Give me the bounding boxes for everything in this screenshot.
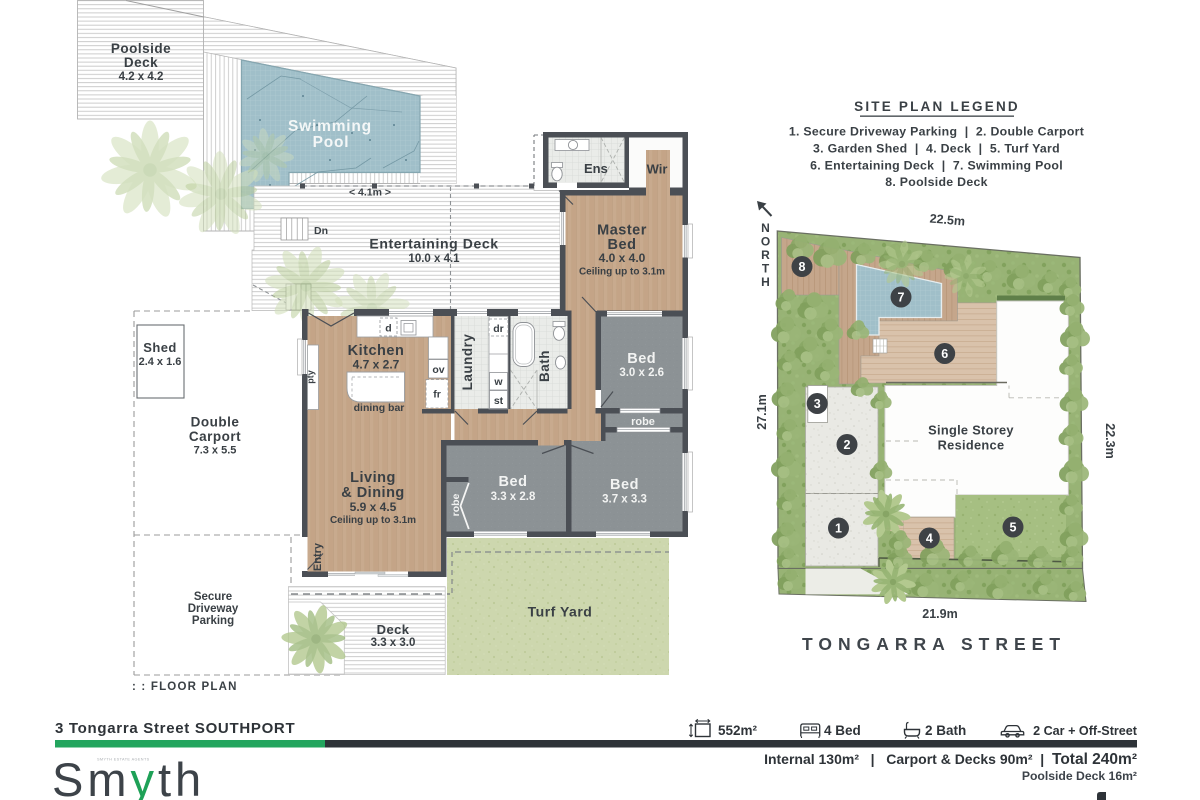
- svg-text:4.0 x 4.0: 4.0 x 4.0: [599, 251, 646, 265]
- svg-text:4: 4: [926, 532, 933, 546]
- svg-text:Poolside: Poolside: [111, 41, 171, 56]
- svg-text:2 Car + Off-Street: 2 Car + Off-Street: [1033, 724, 1138, 738]
- svg-text:Bed: Bed: [499, 474, 528, 490]
- svg-text:2 Bath: 2 Bath: [925, 723, 966, 738]
- svg-text:7: 7: [898, 291, 905, 305]
- svg-text:Entry: Entry: [312, 542, 324, 571]
- svg-text:3: 3: [814, 397, 821, 411]
- svg-text:Wir: Wir: [647, 162, 668, 177]
- svg-text:w: w: [493, 376, 503, 388]
- svg-text:Living: Living: [350, 470, 396, 486]
- svg-text:fr: fr: [433, 389, 441, 401]
- svg-text:Double: Double: [191, 415, 240, 430]
- svg-text:21.9m: 21.9m: [922, 607, 957, 621]
- svg-text:dining bar: dining bar: [354, 402, 405, 414]
- svg-text:8. Poolside Deck: 8. Poolside Deck: [885, 175, 988, 189]
- svg-text:552m²: 552m²: [718, 723, 758, 738]
- svg-text:8: 8: [799, 260, 806, 274]
- svg-text:3.3 x 3.0: 3.3 x 3.0: [371, 637, 416, 649]
- svg-text:Pool: Pool: [313, 134, 350, 151]
- svg-text:Swimming: Swimming: [288, 118, 372, 135]
- svg-text:5.9 x 4.5: 5.9 x 4.5: [350, 500, 397, 514]
- svg-text:3.3 x 2.8: 3.3 x 2.8: [491, 491, 536, 503]
- svg-text:: : FLOOR PLAN: : : FLOOR PLAN: [132, 681, 238, 693]
- svg-text:Internal 130m² | Carport &: Internal 130m² | Carport & Decks 90m² | …: [764, 751, 1137, 768]
- svg-text:5: 5: [1010, 521, 1017, 535]
- svg-text:robe: robe: [631, 416, 655, 428]
- svg-text:6: 6: [941, 347, 948, 361]
- svg-text:7.3 x 5.5: 7.3 x 5.5: [194, 445, 237, 457]
- svg-text:R: R: [761, 248, 770, 262]
- svg-text:Bath: Bath: [537, 350, 552, 382]
- svg-text:3 Tongarra Street SOUTHPORT: 3 Tongarra Street SOUTHPORT: [55, 720, 295, 737]
- svg-text:& Dining: & Dining: [341, 485, 405, 501]
- svg-text:Parking: Parking: [192, 615, 234, 627]
- svg-text:dr: dr: [493, 323, 504, 335]
- svg-text:10.0 x 4.1: 10.0 x 4.1: [408, 253, 460, 265]
- svg-text:Single Storey: Single Storey: [928, 423, 1014, 438]
- svg-text:pty: pty: [306, 370, 316, 384]
- svg-text:Carport: Carport: [189, 429, 241, 444]
- svg-text:2: 2: [844, 438, 851, 452]
- svg-text:Ens: Ens: [584, 161, 608, 176]
- svg-text:T: T: [762, 262, 770, 276]
- svg-text:SMYTH ESTATE AGENTS: SMYTH ESTATE AGENTS: [97, 758, 150, 762]
- svg-text:4.7 x 2.7: 4.7 x 2.7: [353, 358, 400, 372]
- svg-text:H: H: [761, 275, 770, 289]
- svg-text:SITE PLAN LEGEND: SITE PLAN LEGEND: [854, 99, 1020, 114]
- svg-text:Entertaining Deck: Entertaining Deck: [369, 236, 498, 252]
- svg-text:3. Garden Shed | 4. Deck |: 3. Garden Shed | 4. Deck | 5. Turf Yard: [813, 142, 1060, 156]
- svg-text:< 4.1m >: < 4.1m >: [349, 187, 391, 199]
- svg-text:Driveway: Driveway: [188, 603, 239, 615]
- svg-text:Ceiling up to 3.1m: Ceiling up to 3.1m: [330, 515, 416, 526]
- svg-text:4.2 x 4.2: 4.2 x 4.2: [119, 71, 164, 83]
- svg-text:Bed: Bed: [610, 477, 639, 493]
- svg-text:27.1m: 27.1m: [755, 394, 769, 429]
- svg-text:Poolside Deck 16m²: Poolside Deck 16m²: [1022, 769, 1137, 783]
- svg-text:O: O: [761, 235, 770, 249]
- svg-text:ov: ov: [432, 364, 444, 376]
- svg-text:Residence: Residence: [938, 438, 1005, 453]
- svg-text:N: N: [761, 221, 770, 235]
- svg-text:3.7 x 3.3: 3.7 x 3.3: [602, 494, 647, 506]
- svg-text:Bed: Bed: [627, 351, 656, 367]
- svg-text:Secure: Secure: [194, 591, 232, 603]
- svg-text:Deck: Deck: [124, 55, 158, 70]
- svg-text:Laundry: Laundry: [460, 334, 475, 391]
- svg-text:1. Secure Driveway Parking |: 1. Secure Driveway Parking | 2. Double C…: [789, 125, 1084, 139]
- svg-text:robe: robe: [450, 493, 462, 516]
- svg-text:Shed: Shed: [143, 340, 176, 355]
- svg-text:1: 1: [835, 522, 842, 536]
- svg-text:6. Entertaining Deck | 7. Sw: 6. Entertaining Deck | 7. Swimming Pool: [810, 159, 1063, 173]
- svg-text:3.0 x 2.6: 3.0 x 2.6: [619, 367, 664, 379]
- svg-text:Turf Yard: Turf Yard: [528, 604, 593, 620]
- svg-text:Ceiling up to 3.1m: Ceiling up to 3.1m: [579, 267, 665, 278]
- svg-text:22.3m: 22.3m: [1103, 423, 1117, 458]
- svg-text:st: st: [494, 395, 504, 407]
- svg-text:2.4 x 1.6: 2.4 x 1.6: [139, 356, 182, 368]
- svg-text:Deck: Deck: [377, 622, 410, 637]
- svg-text:4 Bed: 4 Bed: [824, 723, 861, 738]
- svg-text:Dn: Dn: [314, 225, 328, 237]
- svg-text:TONGARRA STREET: TONGARRA STREET: [802, 634, 1066, 654]
- svg-text:d: d: [385, 323, 391, 335]
